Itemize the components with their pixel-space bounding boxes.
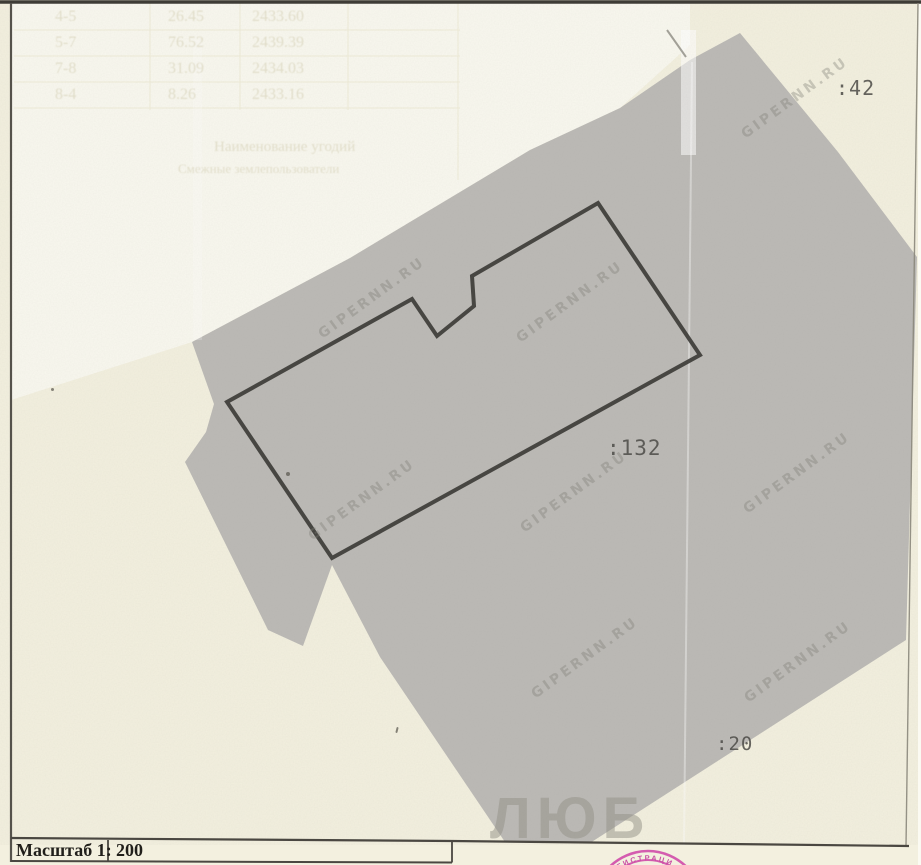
parcel-label-132: :132 bbox=[607, 436, 662, 460]
scale-label: Масштаб 1: bbox=[16, 840, 112, 861]
scan-speck bbox=[51, 388, 54, 391]
bleedthrough-cell: 2433.16 bbox=[252, 86, 304, 104]
bleedthrough-cell: 76.52 bbox=[168, 34, 204, 52]
bleedthrough-cell: 8-4 bbox=[55, 86, 76, 104]
bleedthrough-cell: 8.26 bbox=[168, 86, 196, 104]
bleedthrough-heading: Наименование угодий bbox=[214, 139, 355, 156]
bleedthrough-cell: 26.45 bbox=[168, 8, 204, 26]
scan-speck bbox=[286, 472, 290, 476]
bleedthrough-cell: 2439.39 bbox=[252, 34, 304, 52]
scanned-cadastral-plan-page: РЕГИСТРАЦИ ЛЮБ GIPERNN.RUGIPERNN.RUGIPER… bbox=[0, 0, 921, 865]
bleedthrough-subheading: Смежные землепользователи bbox=[178, 161, 339, 177]
parcel-label-42: :42 bbox=[836, 76, 875, 100]
bleedthrough-cell: 2434.03 bbox=[252, 60, 304, 78]
bleedthrough-cell: 4-5 bbox=[55, 8, 76, 26]
bleedthrough-cell: 7-8 bbox=[55, 60, 76, 78]
bleedthrough-cell: 5-7 bbox=[55, 34, 76, 52]
parcel-label-20: :20 bbox=[716, 733, 753, 755]
scale-value: 200 bbox=[116, 840, 143, 861]
bleedthrough-cell: 31.09 bbox=[168, 60, 204, 78]
map-artwork: РЕГИСТРАЦИ bbox=[0, 0, 921, 865]
bleedthrough-cell: 2433.60 bbox=[252, 8, 304, 26]
scan-grain-texture bbox=[0, 3, 918, 845]
